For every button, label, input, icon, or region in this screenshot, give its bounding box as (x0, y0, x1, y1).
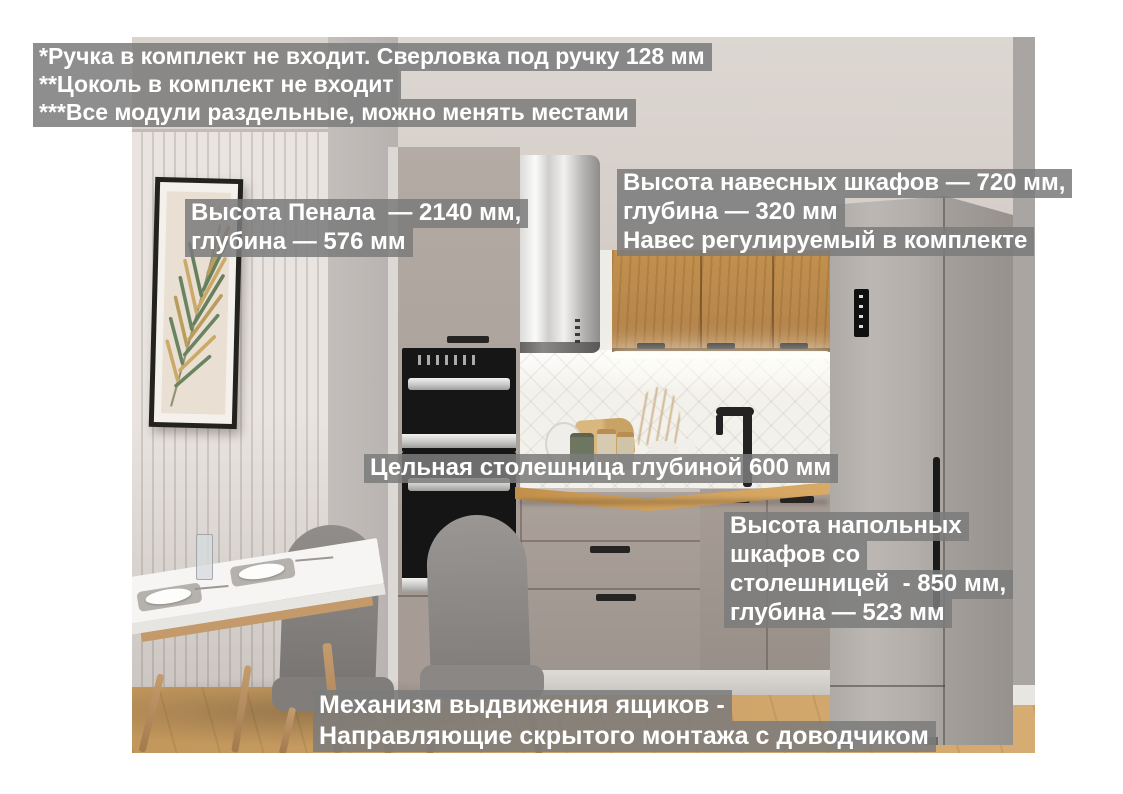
annotation-line: глубина — 576 мм (185, 228, 413, 257)
annotation-line: Высота навесных шкафов — 720 мм, (617, 169, 1072, 198)
fridge-freezer-gap (830, 685, 945, 687)
annotation-line: ***Все модули раздельные, можно менять м… (33, 99, 636, 127)
drawer-handle (590, 546, 630, 553)
product-annotation-image: *Ручка в комплект не входит. Сверловка п… (0, 0, 1123, 794)
annotation-line: Навес регулируемый в комплекте (617, 227, 1034, 256)
annotation-line: Направляющие скрытого монтажа с доводчик… (313, 721, 936, 752)
right-wall (1013, 37, 1035, 705)
drinking-glass (196, 534, 213, 580)
kitchen-photo (132, 37, 1035, 753)
drawer-gap (520, 540, 700, 542)
right-baseboard (1013, 685, 1035, 705)
wall-cabinet-handle (780, 343, 808, 349)
drawer-handle (596, 594, 636, 601)
faucet-nozzle (716, 415, 723, 435)
compact-oven-handle (408, 378, 510, 390)
oven-display (418, 355, 478, 365)
annotation-drawer-mechanism: Механизм выдвижения ящиков - Направляющи… (313, 690, 936, 752)
tall-cabinet-handle (447, 336, 489, 343)
annotation-line: шкафов со (724, 541, 867, 570)
annotation-base-cabinets: Высота напольных шкафов со столешницей -… (724, 512, 1013, 628)
refrigerator (830, 192, 1013, 745)
annotation-footnotes: *Ручка в комплект не входит. Сверловка п… (33, 43, 712, 127)
annotation-wall-cabinets: Высота навесных шкафов — 720 мм, глубина… (617, 169, 1072, 256)
chair-back (425, 513, 531, 678)
fridge-side (945, 192, 1013, 745)
compact-oven-base (402, 434, 516, 448)
pampas-stems (638, 387, 680, 445)
annotation-line: Высота напольных (724, 512, 969, 541)
annotation-line: глубина — 320 мм (617, 198, 845, 227)
wall-cabinet-door-gap (700, 250, 702, 348)
wall-cabinet-door-gap (772, 250, 774, 348)
annotation-line: глубина — 523 мм (724, 599, 952, 628)
fridge-display-dots (859, 295, 863, 329)
annotation-tall-cabinet: Высота Пенала — 2140 мм, глубина — 576 м… (185, 199, 528, 257)
annotation-line: столешницей - 850 мм, (724, 570, 1013, 599)
hood-control-buttons (575, 319, 580, 343)
annotation-line: Высота Пенала — 2140 мм, (185, 199, 528, 228)
fridge-control-panel (854, 289, 869, 337)
countertop-shadow (520, 499, 828, 505)
wall-cabinet-handle (637, 343, 665, 349)
fridge-front (830, 192, 945, 745)
base-drawer-stack (520, 492, 702, 690)
annotation-line: *Ручка в комплект не входит. Сверловка п… (33, 43, 712, 71)
wall-cabinet-handle (707, 343, 735, 349)
annotation-countertop: Цельная столешница глубиной 600 мм (364, 454, 838, 483)
wall-cabinets (612, 250, 830, 352)
drawer-gap (520, 588, 700, 590)
led-light-strip (612, 351, 830, 359)
annotation-line: Механизм выдвижения ящиков - (313, 690, 732, 721)
annotation-line: Цельная столешница глубиной 600 мм (364, 454, 838, 483)
annotation-line: **Цоколь в комплект не входит (33, 71, 401, 99)
fridge-door-gap (943, 196, 945, 745)
